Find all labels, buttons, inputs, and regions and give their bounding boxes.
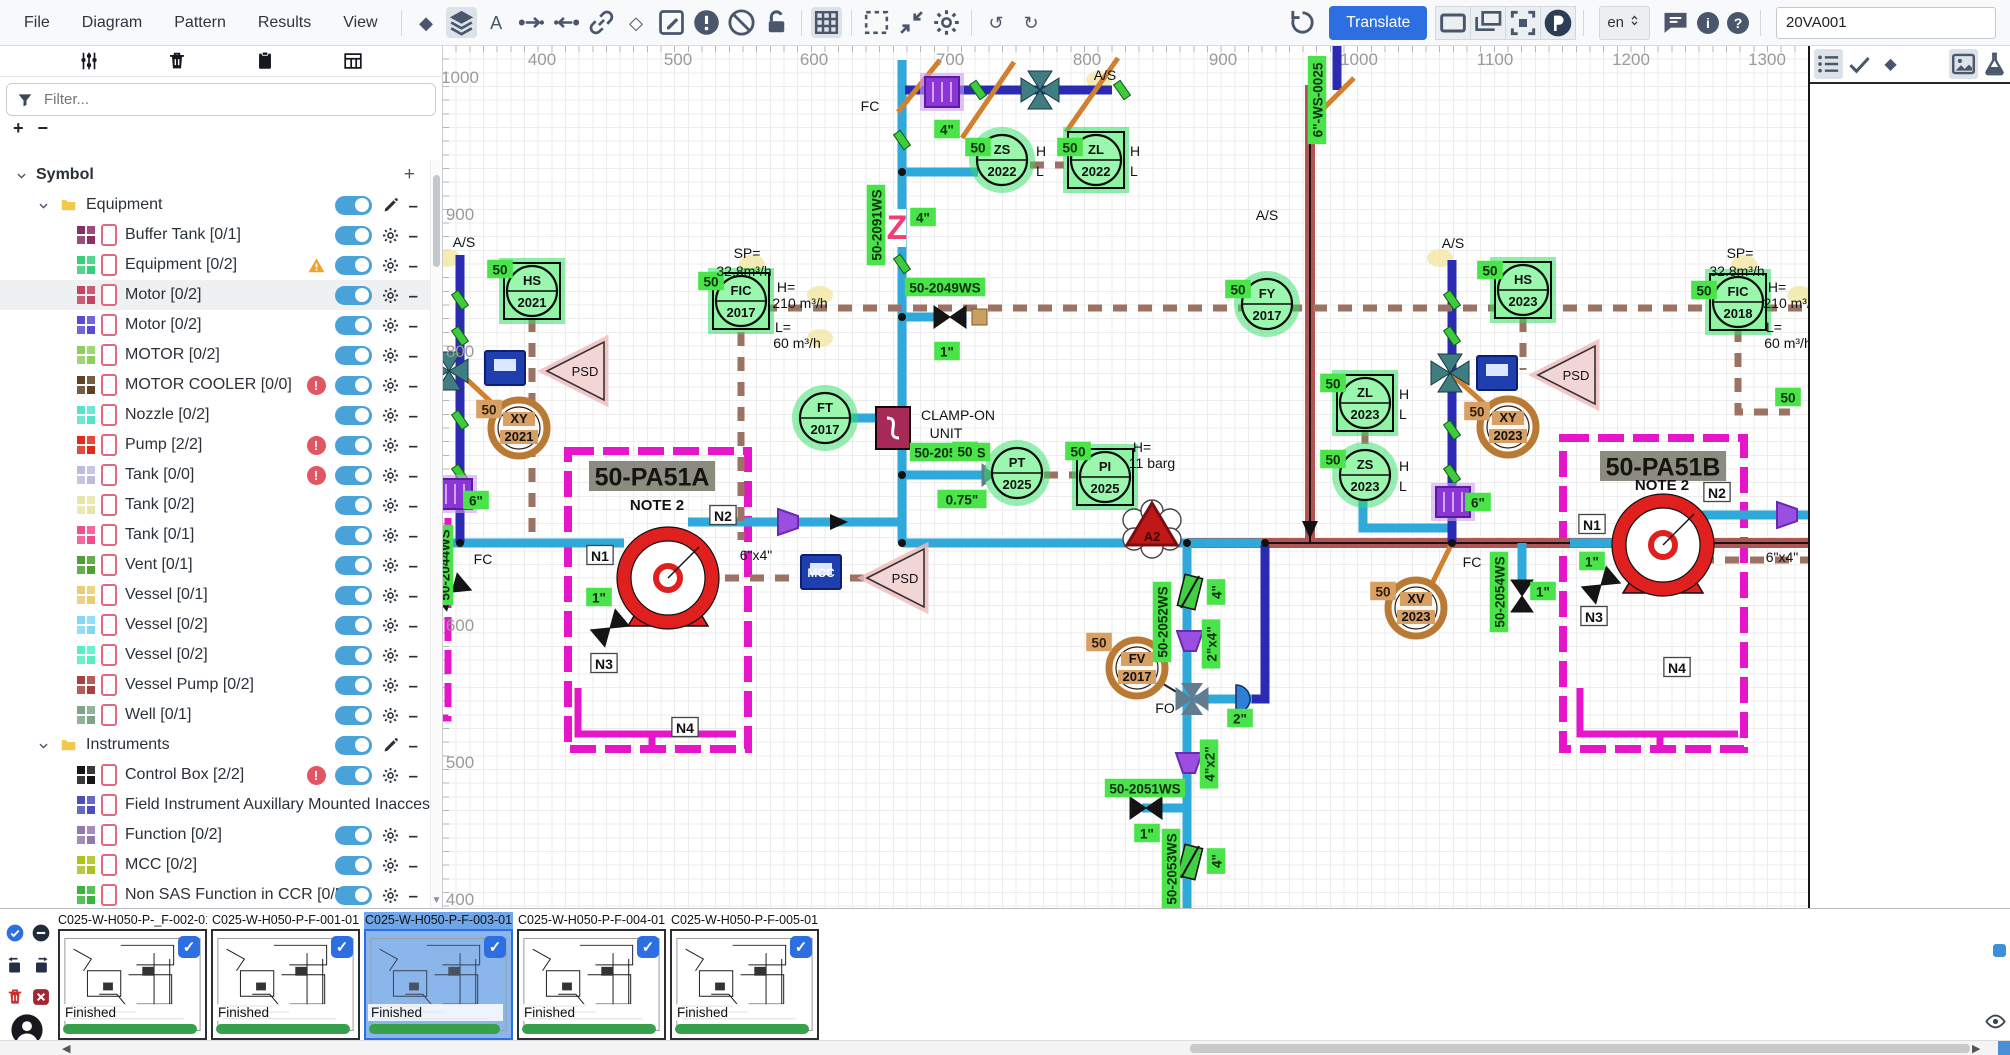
visibility-toggle[interactable]	[335, 766, 372, 785]
text-label: H=	[777, 279, 795, 295]
tree-folder-equipment[interactable]: Equipment–	[0, 190, 431, 220]
scroll-left-icon[interactable]: ◀	[62, 1042, 70, 1055]
page-selected-checkbox[interactable]: ✓	[331, 936, 353, 958]
menu-diagram[interactable]: Diagram	[66, 14, 158, 32]
remove-icon[interactable]: –	[409, 377, 418, 394]
gear-icon[interactable]	[381, 346, 400, 365]
visibility-toggle[interactable]	[335, 676, 372, 695]
psd-triangle[interactable]: PSD	[867, 549, 924, 607]
line-tag: 50-2049WS	[905, 278, 985, 297]
pipe-flag	[452, 410, 469, 429]
tree-item-non-sas-function-in-ccr[interactable]: Non SAS Function in CCR [0/5]–	[0, 880, 431, 908]
tree-item-label: Vessel [0/1]	[125, 586, 208, 604]
rotate-page-right-icon[interactable]	[31, 955, 51, 975]
canvas-label: PSD	[1563, 368, 1590, 383]
scroll-right-icon[interactable]: ▶	[1972, 1042, 1980, 1055]
area-tag: 50	[952, 442, 978, 461]
tree-item-tank[interactable]: Tank [0/1]–	[0, 520, 431, 550]
ruler-number: 900	[446, 205, 474, 224]
canvas-label: 50	[1780, 391, 1795, 406]
collapse-all-button[interactable]: −	[38, 119, 49, 137]
tree-item-buffer-tank[interactable]: Buffer Tank [0/1]–	[0, 220, 431, 250]
instrument-number: 2017	[1253, 308, 1282, 323]
tree-item-tank[interactable]: Tank [0/2]–	[0, 490, 431, 520]
line-tag: 6"-WS-0025	[1308, 56, 1327, 144]
remove-failed-icon[interactable]	[31, 987, 51, 1007]
gear-icon[interactable]	[381, 676, 400, 695]
divider	[851, 10, 852, 36]
grid-icon[interactable]	[811, 7, 842, 38]
delete-page-icon[interactable]	[5, 987, 25, 1007]
alarm-a2[interactable]: A2	[1123, 500, 1181, 558]
page-selected-checkbox[interactable]: ✓	[790, 936, 812, 958]
symbol-shape-icon	[101, 764, 117, 786]
tree-item-mcc[interactable]: MCC [0/2]–	[0, 850, 431, 880]
symbol-color-icon	[77, 346, 95, 364]
visibility-toggle[interactable]	[335, 706, 372, 725]
valve-pc[interactable]	[1176, 753, 1202, 773]
visibility-toggle[interactable]	[335, 466, 372, 485]
canvas-label: 1"	[1536, 585, 1550, 600]
gear-icon[interactable]	[381, 316, 400, 335]
valve-gz[interactable]	[1177, 574, 1202, 609]
low-mark: L	[1399, 406, 1407, 422]
progress-bar	[216, 1024, 350, 1034]
tree-item-nozzle[interactable]: Nozzle [0/2]–	[0, 400, 431, 430]
valve-x4[interactable]	[1021, 71, 1059, 109]
nozzle-tag: N4	[1664, 658, 1690, 677]
list-view-icon[interactable]	[1814, 49, 1843, 79]
symbol-color-icon	[77, 796, 95, 814]
folder-label: Equipment	[86, 196, 163, 214]
gear-icon[interactable]	[381, 586, 400, 605]
tree-item-vessel[interactable]: Vessel [0/2]–	[0, 610, 431, 640]
ruler-number: 1000	[1340, 50, 1378, 69]
mcc-label: MCC	[807, 566, 835, 580]
menu-pattern[interactable]: Pattern	[158, 14, 242, 32]
folder-icon	[58, 736, 79, 754]
chevron-down-icon[interactable]	[35, 197, 52, 214]
adjust-sliders-icon[interactable]	[78, 50, 100, 72]
trash-icon[interactable]	[166, 50, 188, 72]
symbol-color-icon	[77, 256, 95, 274]
valve-gz[interactable]	[1177, 844, 1202, 879]
alert-icon[interactable]	[691, 7, 722, 38]
tree-item-control-box[interactable]: Control Box [2/2]!–	[0, 760, 431, 790]
line-tag: 4"	[1207, 579, 1226, 605]
valve-pc[interactable]	[1777, 502, 1797, 528]
valve-cl[interactable]	[876, 407, 910, 449]
instrument-tag: ZS	[1357, 457, 1374, 472]
gear-icon[interactable]	[381, 406, 400, 425]
pump-symbol[interactable]	[1612, 494, 1714, 596]
tree-item-label: Tank [0/2]	[125, 496, 194, 514]
remove-icon[interactable]: –	[409, 707, 418, 724]
instrument-zl-2022[interactable]: ZL2022HL	[1063, 127, 1140, 193]
deselect-pages-icon[interactable]	[31, 923, 51, 943]
spec-break: Z	[887, 209, 908, 247]
history-icon[interactable]	[1287, 7, 1318, 38]
window-icon[interactable]	[1435, 6, 1471, 40]
visibility-toggle[interactable]	[335, 556, 372, 575]
instrument-tag: FT	[817, 400, 833, 415]
divider	[401, 10, 402, 36]
instrument-number: 2022	[988, 164, 1017, 179]
high-mark: H	[1036, 143, 1046, 159]
remove-icon[interactable]: –	[409, 557, 418, 574]
remove-icon[interactable]: –	[409, 287, 418, 304]
remove-icon[interactable]: –	[409, 527, 418, 544]
focus-icon[interactable]	[1505, 6, 1541, 40]
page-status: Finished	[62, 1004, 197, 1021]
gear-icon[interactable]	[381, 616, 400, 635]
psd-triangle[interactable]: PSD	[1538, 346, 1595, 404]
check-icon[interactable]	[1845, 49, 1874, 79]
scroll-corner	[1998, 1041, 2010, 1055]
visibility-toggle[interactable]	[335, 346, 372, 365]
remove-icon[interactable]: –	[409, 857, 418, 874]
symbol-shape-icon	[101, 374, 117, 396]
visibility-toggle[interactable]	[335, 826, 372, 845]
edit-pencil-icon[interactable]	[381, 196, 400, 215]
filter-input[interactable]	[42, 90, 426, 109]
help-icon[interactable]: ?	[1727, 12, 1749, 34]
updown-caret-icon	[1627, 13, 1642, 32]
symbol-shape-icon	[101, 704, 117, 726]
error-badge-icon: !	[307, 766, 326, 785]
line-tag: 50-2051WS	[1105, 779, 1185, 798]
tree-item-motor[interactable]: Motor [0/2]–	[0, 280, 431, 310]
visibility-toggle[interactable]	[335, 376, 372, 395]
ruler-number: 400	[528, 50, 556, 69]
tree-item-motor[interactable]: Motor [0/2]–	[0, 310, 431, 340]
area-tag: 50	[1057, 138, 1083, 157]
valve-zp[interactable]: Z	[887, 209, 908, 247]
gear-icon[interactable]	[381, 856, 400, 875]
tree-item-vessel-pump[interactable]: Vessel Pump [0/2]–	[0, 670, 431, 700]
valve-bk[interactable]	[1511, 580, 1533, 612]
page-preview[interactable]: ✓Finished	[364, 929, 513, 1040]
tree-item-field-instrument-auxillary-mounted-inaccessabl[interactable]: Field Instrument Auxillary Mounted Inacc…	[0, 790, 431, 820]
comment-icon[interactable]	[1660, 7, 1691, 38]
canvas-label: 6"	[469, 494, 483, 509]
canvas-label: 50	[1696, 284, 1711, 299]
pid-diagram[interactable]: ZZS2022HLZL2022HLHS2021FIC2017FT2017FY20…	[442, 45, 1808, 908]
psd-triangle[interactable]: PSD	[547, 342, 604, 400]
pump-symbol[interactable]	[617, 527, 719, 629]
flow-arrow	[1302, 521, 1318, 539]
gear-icon[interactable]	[381, 826, 400, 845]
gear-icon[interactable]	[381, 706, 400, 725]
undo-icon[interactable]: ↺	[981, 7, 1012, 38]
windows-stack-icon[interactable]	[1470, 6, 1506, 40]
tree-item-vessel[interactable]: Vessel [0/1]–	[0, 580, 431, 610]
visibility-toggle[interactable]	[335, 616, 372, 635]
error-badge-icon: !	[307, 376, 326, 395]
language-select[interactable]: en	[1599, 6, 1650, 40]
remove-icon[interactable]: –	[409, 767, 418, 784]
page-thumbnail-5[interactable]: C025-W-H050-P-F-005-01✓Finished	[670, 912, 819, 1040]
edit-icon[interactable]	[656, 7, 687, 38]
page-thumbnail-1[interactable]: C025-W-H050-P-_F-002-01_A2_001✓Finished	[58, 912, 207, 1040]
page-title: C025-W-H050-P-F-001-01	[211, 912, 360, 929]
visibility-toggle[interactable]	[335, 496, 372, 515]
pipe	[1252, 545, 1265, 699]
remove-icon[interactable]: –	[409, 437, 418, 454]
sidebar-scrollbar[interactable]: ▼	[430, 160, 442, 908]
remove-icon[interactable]: –	[409, 587, 418, 604]
remove-icon[interactable]: –	[409, 407, 418, 424]
visibility-toggle[interactable]	[335, 526, 372, 545]
canvas-label: 50	[1325, 377, 1340, 392]
tree-item-label: Equipment [0/2]	[125, 256, 237, 274]
selection-icon[interactable]	[861, 7, 892, 38]
tree-item-vessel[interactable]: Vessel [0/2]–	[0, 640, 431, 670]
remove-icon[interactable]: –	[409, 317, 418, 334]
tree-item-motor-cooler[interactable]: MOTOR COOLER [0/0]!–	[0, 370, 431, 400]
remove-icon[interactable]: –	[409, 197, 418, 214]
page-status: Finished	[215, 1004, 350, 1021]
area-tag: 50	[1464, 402, 1490, 421]
valve-pb[interactable]	[920, 73, 964, 111]
remove-icon[interactable]: –	[409, 257, 418, 274]
gear-icon[interactable]	[381, 496, 400, 515]
connector-in-icon[interactable]	[551, 7, 582, 38]
tree-item-tank[interactable]: Tank [0/0]!–	[0, 460, 431, 490]
brand-icon[interactable]	[1540, 6, 1576, 40]
symbol-color-icon	[77, 316, 95, 334]
page-selected-checkbox[interactable]: ✓	[178, 936, 200, 958]
tree-root-label: Symbol	[36, 166, 94, 184]
gear-icon[interactable]	[381, 286, 400, 305]
sidebar-panel: + − Symbol+Equipment–Buffer Tank [0/1]–E…	[0, 45, 443, 908]
text-label: CLAMP-ON	[921, 407, 995, 423]
line-tag: 50-2052WS	[1153, 582, 1172, 662]
remove-icon[interactable]: –	[409, 887, 418, 904]
canvas-label: XY	[510, 411, 528, 426]
valve-pc[interactable]	[778, 509, 798, 535]
canvas-label: FV	[1129, 651, 1146, 666]
text-label: 210 m³/h	[772, 295, 827, 311]
table-icon[interactable]	[342, 50, 364, 72]
translate-button[interactable]: Translate	[1329, 6, 1427, 40]
visibility-toggle[interactable]	[335, 196, 372, 215]
valve-bk[interactable]	[1130, 797, 1162, 819]
collapse-icon[interactable]	[896, 7, 927, 38]
tree-item-well[interactable]: Well [0/1]–	[0, 700, 431, 730]
instrument-tag: FIC	[731, 283, 753, 298]
chevron-down-icon[interactable]	[35, 737, 52, 754]
lab-flask-icon[interactable]	[1980, 49, 2009, 79]
instrument-number: 2017	[811, 422, 840, 437]
visibility-toggle[interactable]	[335, 886, 372, 905]
line-tag: 0.75"	[937, 490, 986, 509]
remove-icon[interactable]: –	[409, 227, 418, 244]
visibility-toggle[interactable]	[335, 856, 372, 875]
menu-results[interactable]: Results	[242, 14, 327, 32]
scrollbar-thumb[interactable]	[1190, 1044, 1970, 1053]
gear-icon[interactable]	[381, 436, 400, 455]
instrument-xv-2023[interactable]: XV2023	[1388, 580, 1444, 636]
gear-icon[interactable]	[381, 226, 400, 245]
page-preview[interactable]: ✓Finished	[670, 929, 819, 1040]
valve-bk[interactable]	[1582, 566, 1621, 603]
tree-item-equipment[interactable]: Equipment [0/2]–	[0, 250, 431, 280]
remove-icon[interactable]: –	[409, 737, 418, 754]
visibility-toggle[interactable]	[335, 226, 372, 245]
menu-view[interactable]: View	[327, 14, 393, 32]
high-mark: H	[1399, 458, 1409, 474]
high-mark: H	[1399, 386, 1409, 402]
link-icon[interactable]	[586, 7, 617, 38]
page-preview[interactable]: ✓Finished	[517, 929, 666, 1040]
remove-icon[interactable]: –	[409, 497, 418, 514]
gear-icon[interactable]	[381, 466, 400, 485]
rotate-page-left-icon[interactable]	[5, 955, 25, 975]
pipe	[578, 688, 736, 734]
folder-icon	[58, 196, 79, 214]
page-title: C025-W-H050-P-F-004-01	[517, 912, 666, 929]
info-icon[interactable]: i	[1697, 12, 1719, 34]
page-thumbnail-3[interactable]: C025-W-H050-P-F-003-01✓Finished	[364, 912, 513, 1040]
instrument-number: 2018	[1724, 306, 1753, 321]
remove-icon[interactable]: –	[409, 347, 418, 364]
remove-icon[interactable]: –	[409, 647, 418, 664]
area-tag: 50	[1320, 374, 1346, 393]
valve-pc[interactable]	[1177, 631, 1203, 651]
tree-item-function[interactable]: Function [0/2]–	[0, 820, 431, 850]
eye-icon[interactable]	[1984, 1010, 2007, 1033]
line-tag: 4"	[1207, 848, 1226, 874]
gear-icon[interactable]	[381, 766, 400, 785]
symbol-shape-icon	[101, 674, 117, 696]
menu-file[interactable]: File	[8, 14, 66, 32]
instrument-number: 2023	[1351, 479, 1380, 494]
valve-bk[interactable]	[591, 609, 630, 646]
flow-arrow	[830, 514, 848, 530]
page-selected-checkbox[interactable]: ✓	[637, 936, 659, 958]
valve-gx[interactable]	[1176, 683, 1208, 715]
visibility-toggle[interactable]	[335, 256, 372, 275]
area-tag: 50	[487, 260, 513, 279]
pipe-flag	[1114, 80, 1131, 99]
instrument-pt-2025[interactable]: PT2025	[984, 440, 1050, 506]
canvas-label: 0.75"	[946, 493, 979, 508]
layers-icon[interactable]	[446, 7, 477, 38]
note-label: NOTE 2	[630, 497, 684, 514]
symbol-shape-icon	[101, 494, 117, 516]
remove-icon[interactable]: –	[409, 467, 418, 484]
valve-bb[interactable]	[485, 351, 525, 385]
instrument-ft-2017[interactable]: FT2017	[792, 385, 858, 451]
expand-all-button[interactable]: +	[13, 119, 24, 137]
line-tag: 50-2050WS	[910, 443, 990, 462]
visibility-toggle[interactable]	[335, 316, 372, 335]
ruler-number: 700	[936, 50, 964, 69]
remove-icon[interactable]: –	[409, 617, 418, 634]
visibility-toggle[interactable]	[335, 406, 372, 425]
panel-toggle-button[interactable]	[1993, 944, 2006, 957]
horizontal-scrollbar[interactable]: ◀ ▶	[0, 1040, 2010, 1055]
settings-icon[interactable]	[931, 7, 962, 38]
tree-item-vent[interactable]: Vent [0/1]–	[0, 550, 431, 580]
text-label: FC	[1463, 554, 1482, 570]
gear-icon[interactable]	[381, 556, 400, 575]
no-entry-icon[interactable]	[726, 7, 757, 38]
edit-pencil-icon[interactable]	[381, 736, 400, 755]
visibility-toggle[interactable]	[335, 586, 372, 605]
page-thumbnail-2[interactable]: C025-W-H050-P-F-001-01✓Finished	[211, 912, 360, 1040]
symbol-view-icon[interactable]: ◆	[1876, 49, 1905, 79]
remove-icon[interactable]: –	[409, 677, 418, 694]
redo-icon[interactable]: ↻	[1016, 7, 1047, 38]
gear-icon[interactable]	[381, 256, 400, 275]
unlock-icon[interactable]	[761, 7, 792, 38]
scroll-down-icon[interactable]: ▼	[431, 895, 442, 906]
visibility-toggle[interactable]	[335, 286, 372, 305]
connector-out-icon[interactable]	[516, 7, 547, 38]
select-all-pages-icon[interactable]	[5, 923, 25, 943]
text-label: 32.8m³/h	[716, 263, 771, 279]
text-label: 210 m³/h	[1763, 295, 1808, 311]
valve-tr[interactable]	[972, 309, 987, 325]
page-preview[interactable]: ✓Finished	[58, 929, 207, 1040]
add-icon[interactable]: +	[404, 164, 415, 186]
app-root: FileDiagramPatternResultsView ◆A◇↺↻ Tran…	[0, 0, 2010, 1055]
remove-icon[interactable]: –	[409, 827, 418, 844]
canvas-label: 50-2049WS	[909, 281, 980, 296]
diagram-canvas[interactable]: ZZS2022HLZL2022HLHS2021FIC2017FT2017FY20…	[442, 45, 1810, 908]
tree-item-pump[interactable]: Pump [2/2]!–	[0, 430, 431, 460]
drawing-number-input[interactable]	[1776, 7, 1996, 39]
gear-icon[interactable]	[381, 526, 400, 545]
text-icon[interactable]: A	[481, 7, 512, 38]
gear-icon[interactable]	[381, 376, 400, 395]
canvas-label: N1	[591, 548, 609, 564]
page-thumbnail-4[interactable]: C025-W-H050-P-F-004-01✓Finished	[517, 912, 666, 1040]
tree-item-motor[interactable]: MOTOR [0/2]–	[0, 340, 431, 370]
valve-bb[interactable]	[1477, 356, 1517, 390]
low-mark: L	[1130, 163, 1138, 179]
area-tag: 50	[1775, 388, 1801, 407]
gear-icon[interactable]	[381, 646, 400, 665]
diamond-outline-icon[interactable]: ◇	[621, 7, 652, 38]
pipe-flag	[452, 290, 469, 309]
visibility-toggle[interactable]	[335, 736, 372, 755]
tree-root-symbol[interactable]: Symbol+	[0, 160, 431, 190]
diamond-filled-icon[interactable]: ◆	[411, 7, 442, 38]
line-tag: 4"x2"	[1200, 739, 1219, 788]
chevron-down-icon[interactable]	[13, 167, 30, 184]
page-selected-checkbox[interactable]: ✓	[484, 936, 506, 958]
instrument-zs-2022[interactable]: ZS2022HL	[969, 127, 1046, 193]
tree-folder-instruments[interactable]: Instruments–	[0, 730, 431, 760]
scrollbar-thumb[interactable]	[433, 175, 440, 267]
image-view-icon[interactable]	[1949, 49, 1978, 79]
canvas-label: N3	[595, 656, 613, 672]
visibility-toggle[interactable]	[335, 646, 372, 665]
gear-icon[interactable]	[381, 886, 400, 905]
canvas-label: 50	[970, 141, 985, 156]
page-preview[interactable]: ✓Finished	[211, 929, 360, 1040]
canvas-label: 50-2044WS	[442, 529, 453, 600]
symbol-shape-icon	[101, 404, 117, 426]
visibility-toggle[interactable]	[335, 436, 372, 455]
clipboard-icon[interactable]	[254, 50, 276, 72]
language-value: en	[1607, 14, 1624, 31]
symbol-color-icon	[77, 646, 95, 664]
canvas-label: 4"	[940, 123, 954, 138]
